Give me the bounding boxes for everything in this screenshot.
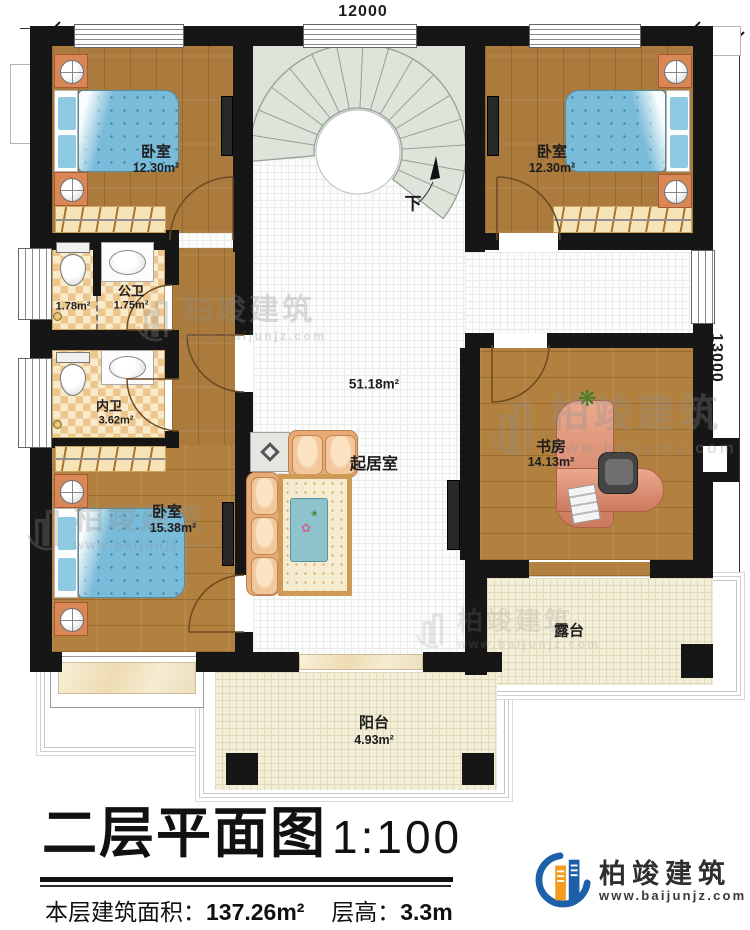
room-area-bedroom-tl: 12.30m² (133, 162, 180, 175)
door-arc (189, 575, 244, 632)
door-arc (497, 177, 560, 240)
door-arc (127, 379, 179, 431)
room-label-balcony: 阳台 (359, 716, 389, 731)
room-label-bedroom-bl: 卧室 (152, 505, 182, 520)
door-arc (170, 177, 233, 240)
room-label-public-bath: 公卫 (118, 285, 144, 298)
page-title: 二层平面图 (42, 806, 327, 861)
title-rule (40, 877, 453, 882)
floor-height-label: 层高： (331, 899, 400, 925)
room-area-ensuite-bath: 3.62m² (99, 416, 134, 427)
room-area-bedroom-tr: 12.30m² (529, 162, 576, 175)
room-label-bedroom-tr: 卧室 (537, 145, 567, 160)
room-label-terrace: 露台 (554, 624, 584, 639)
door-arc (187, 335, 244, 392)
title-rule-thin (40, 885, 451, 887)
room-area-study: 14.13m² (528, 456, 575, 469)
brand-building-icon (531, 850, 593, 912)
scale-label: 1:100 (332, 814, 462, 860)
brand-logo: 柏竣建筑 www.baijunjz.com (531, 850, 746, 912)
floor-info: 本层建筑面积：137.26m² 层高：3.3m (45, 893, 453, 927)
room-area-public-bath: 1.75m² (114, 301, 149, 312)
door-arc (492, 345, 549, 402)
floor-height-value: 3.3m (400, 899, 452, 925)
room-label-study: 书房 (536, 440, 566, 455)
floorplan-page: 12000 13000 下 (0, 0, 750, 930)
brand-name: 柏竣建筑 (599, 860, 746, 890)
room-label-living: 起居室 (350, 457, 398, 473)
floor-area-value: 137.26m² (206, 899, 304, 925)
room-area-living: 51.18m² (349, 377, 399, 391)
room-area-balcony: 4.93m² (354, 734, 394, 747)
room-area-toilet-stall: 1.78m² (56, 302, 91, 313)
room-area-bedroom-bl: 15.38m² (150, 522, 197, 535)
room-label-bedroom-tl: 卧室 (141, 145, 171, 160)
brand-url: www.baijunjz.com (599, 889, 746, 902)
room-label-ensuite-bath: 内卫 (96, 400, 122, 413)
floor-area-label: 本层建筑面积： (45, 899, 206, 925)
